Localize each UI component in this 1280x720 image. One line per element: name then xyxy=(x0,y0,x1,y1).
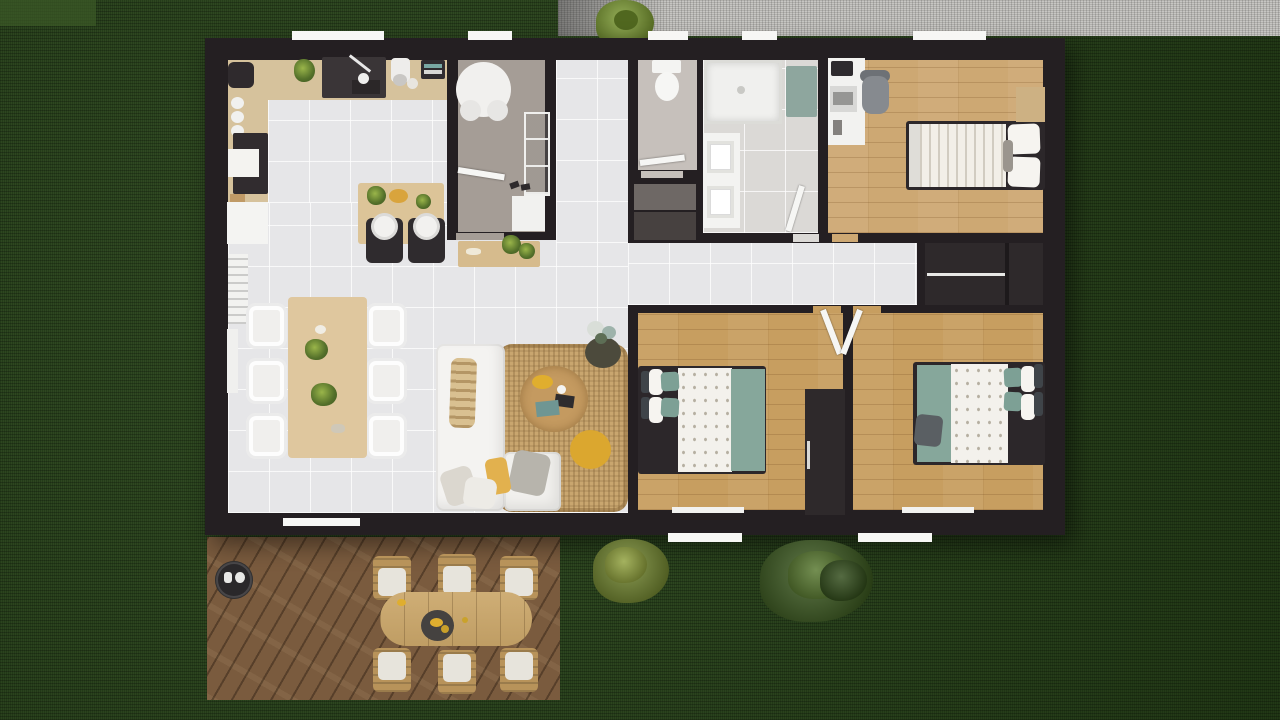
master-laptop xyxy=(831,61,853,76)
mixer-base xyxy=(393,74,407,86)
radiator-2 xyxy=(227,329,238,393)
dining-chair-left-3 xyxy=(246,413,287,459)
breakfast-plate xyxy=(389,189,408,203)
deck-chair-top-2-cushion xyxy=(443,566,471,594)
deck-lemon-3 xyxy=(397,599,406,606)
floorplan-render xyxy=(0,0,1280,720)
wall-entry-left xyxy=(447,38,458,240)
coffee-fruit-bowl xyxy=(532,375,553,389)
entry-chair-1 xyxy=(460,100,481,121)
console-plant-2 xyxy=(519,243,535,259)
bedright-pillow-dark-1 xyxy=(1034,364,1043,388)
kitchen-plant xyxy=(294,59,315,82)
wall-master-bottom xyxy=(828,233,1043,243)
fridge xyxy=(227,202,268,244)
bedmid-wardrobe xyxy=(805,389,845,515)
bedright-throw-pillow xyxy=(913,414,943,448)
road-plant-core xyxy=(614,10,638,30)
dining-chair-right-2 xyxy=(366,358,407,404)
bedright-pillow-dark-2 xyxy=(1034,392,1043,416)
shower-drain xyxy=(737,86,745,94)
threshold-master xyxy=(832,234,858,242)
wardrobe-divider xyxy=(1005,243,1009,305)
bedmid-blanket xyxy=(731,369,765,471)
wardrobe-handle xyxy=(927,273,1009,276)
window-bottom-living xyxy=(283,518,360,526)
radiator-1 xyxy=(228,254,248,324)
window-top-bath xyxy=(742,31,777,40)
living-planter-bloom-3 xyxy=(595,333,607,344)
dining-plant-1 xyxy=(305,339,328,360)
dining-table xyxy=(288,297,367,458)
entry-cabinet xyxy=(512,196,545,231)
bedright-duvet xyxy=(951,364,1008,463)
bedmid-duvet xyxy=(678,368,732,472)
wall-bedroom-mid-left xyxy=(628,305,638,513)
bath-sink-1 xyxy=(707,141,734,173)
window-bottom-bedroom-right xyxy=(858,533,932,542)
cutting-board xyxy=(228,149,259,177)
deck-chair-bottom-2-cushion xyxy=(443,654,471,682)
pouf-yellow xyxy=(570,430,611,469)
dining-chair-right-3 xyxy=(366,413,407,459)
console-dish xyxy=(466,248,481,255)
window-top-kitchen xyxy=(292,31,384,40)
breakfast-plant-1 xyxy=(367,186,386,205)
lawn-light-patch xyxy=(0,0,96,26)
coffee-book xyxy=(535,400,559,417)
deck-dot xyxy=(462,617,468,623)
threshold-entry xyxy=(456,233,504,240)
toaster-teal-band xyxy=(424,64,442,68)
robot-vacuum xyxy=(215,561,253,599)
master-chair xyxy=(862,76,889,114)
deck-chair-bottom-3-cushion xyxy=(505,652,533,680)
closet-panel-bottom xyxy=(634,212,696,240)
breakfast-chair-1 xyxy=(371,213,398,240)
bedmid-pillow-teal-2 xyxy=(661,398,680,418)
counter-bowl xyxy=(407,78,418,89)
bedright-pillow-white-2 xyxy=(1021,394,1035,420)
wall-wc-left xyxy=(628,38,638,178)
bedright-pillow-white-1 xyxy=(1021,366,1035,392)
entry-chair-2 xyxy=(487,100,508,121)
floor-hall-vertical xyxy=(556,60,628,243)
master-pillow-gray xyxy=(1003,140,1013,172)
threshold-wc xyxy=(641,171,683,178)
breakfast-chair-2 xyxy=(413,213,440,240)
kitchen-bowl-2 xyxy=(231,111,244,123)
deck-chair-bottom-1-cushion xyxy=(378,652,406,680)
breakfast-plant-2 xyxy=(416,194,431,209)
bedright-pillow-teal-2 xyxy=(1004,392,1023,412)
closet-panel-top xyxy=(634,184,696,210)
sill-bedroom-mid xyxy=(672,507,744,513)
bedmid-pillow-teal-1 xyxy=(661,372,680,392)
coffee-candle xyxy=(557,385,566,394)
toilet-bowl xyxy=(655,72,679,101)
threshold-bath xyxy=(793,234,819,242)
dining-vase xyxy=(315,325,326,334)
dining-chair-left-1 xyxy=(246,303,287,349)
window-top-wc xyxy=(648,31,688,40)
sofa-throw-blanket xyxy=(449,358,477,429)
kitchen-bowl-1 xyxy=(231,97,244,109)
window-top-entry xyxy=(468,31,512,40)
wall-hall-stub xyxy=(917,243,925,305)
coffee-table xyxy=(520,366,588,432)
sink-bowl xyxy=(358,73,369,84)
toaster-white-band xyxy=(424,70,442,74)
master-desk-item xyxy=(833,120,842,135)
master-bed-duvet xyxy=(920,124,1006,187)
sill-bedroom-right xyxy=(902,507,974,513)
bath-sink-2 xyxy=(707,186,734,218)
bath-mat xyxy=(786,66,817,117)
master-monitor-screen xyxy=(833,92,853,105)
master-dresser xyxy=(1016,87,1045,122)
dining-chair-left-2 xyxy=(246,358,287,404)
coffee-machine xyxy=(228,62,254,88)
dining-plant-2 xyxy=(311,383,337,406)
wall-bath-right xyxy=(818,38,828,243)
floor-hall-horizontal xyxy=(628,243,917,305)
window-top-master xyxy=(913,31,986,40)
robot-vacuum-dot-1 xyxy=(224,572,232,583)
robot-vacuum-dot-2 xyxy=(235,572,245,583)
bedmid-wardrobe-handle xyxy=(807,441,810,469)
dining-deco xyxy=(331,424,345,433)
bedright-pillow-teal-1 xyxy=(1004,368,1023,388)
window-bottom-bedroom-mid xyxy=(668,533,742,542)
sofa-pillow-white xyxy=(462,476,498,510)
dining-chair-right-1 xyxy=(366,303,407,349)
deck-lemon-2 xyxy=(441,625,449,633)
